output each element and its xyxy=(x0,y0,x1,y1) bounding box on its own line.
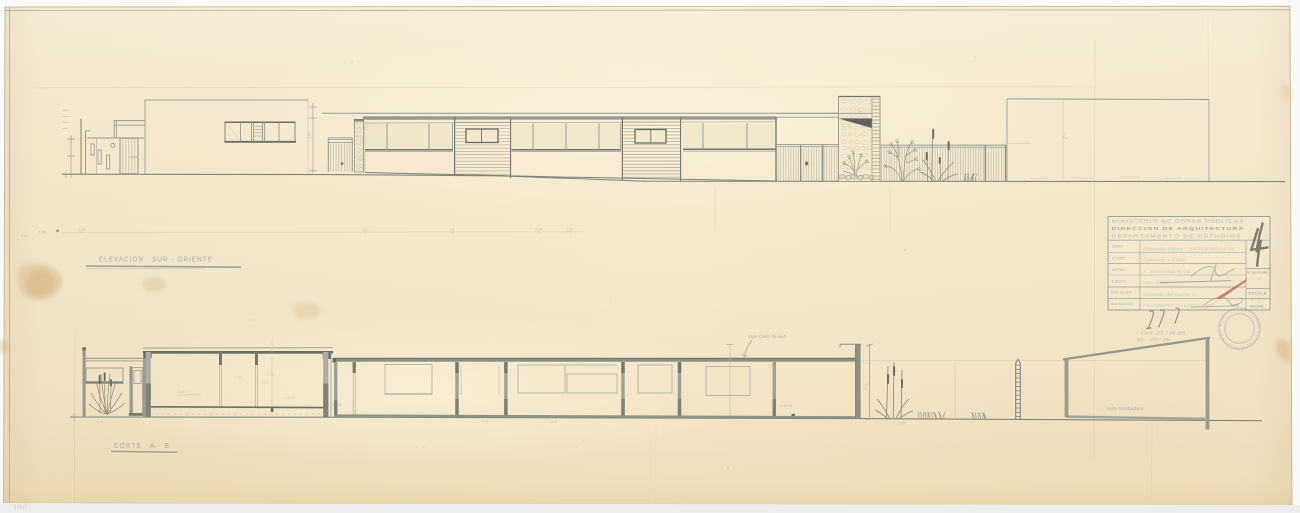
svg-text:1.15: 1.15 xyxy=(566,228,573,232)
svg-text:JEFE SECCION: JEFE SECCION xyxy=(1110,302,1132,306)
svg-text:Escuela Mixta - ANTOFAGASTA: Escuela Mixta - ANTOFAGASTA xyxy=(1143,246,1235,251)
svg-text:2.6: 2.6 xyxy=(550,420,557,424)
svg-text:2.50: 2.50 xyxy=(233,375,243,380)
svg-text:JEFE TALLER: JEFE TALLER xyxy=(1111,291,1132,295)
svg-text:6.10: 6.10 xyxy=(535,228,542,232)
svg-text:DIBUJO: DIBUJO xyxy=(1112,280,1126,284)
svg-text:DIRECCION DE ARQUITECTURA: DIRECCION DE ARQUITECTURA xyxy=(1112,226,1245,231)
svg-text:DEPARTAMENTO DE ESTUDIOS: DEPARTAMENTO DE ESTUDIOS xyxy=(1112,234,1242,239)
svg-text:A. Echeverria B. Ob.: A. Echeverria B. Ob. xyxy=(1142,269,1192,274)
svg-text:1.70: 1.70 xyxy=(96,420,103,424)
svg-text:ELEVACION: ELEVACION xyxy=(99,257,144,264)
svg-text:2.40 m: 2.40 m xyxy=(779,403,793,408)
svg-text:2.50: 2.50 xyxy=(37,231,46,235)
svg-text:11 - 25 / 45: 11 - 25 / 45 xyxy=(1137,337,1171,342)
svg-text:A - B: A - B xyxy=(150,443,170,450)
svg-text:Osvaldo del Canto G.: Osvaldo del Canto G. xyxy=(1143,292,1198,297)
svg-text:2.60: 2.60 xyxy=(267,373,276,377)
svg-text:1.10: 1.10 xyxy=(78,228,85,232)
svg-text:2.50: 2.50 xyxy=(260,381,269,385)
svg-text:1 : 50: 1 : 50 xyxy=(1252,297,1263,302)
svg-text:2: 2 xyxy=(1063,132,1066,136)
svg-text:Fachada y Corte: Fachada y Corte xyxy=(1143,257,1187,262)
svg-text:FECHA: FECHA xyxy=(1250,305,1265,309)
svg-text:4.05: 4.05 xyxy=(362,228,369,232)
svg-text:Viga Cielo de Asb.: Viga Cielo de Asb. xyxy=(748,334,787,339)
svg-text:7.00: 7.00 xyxy=(899,422,906,426)
svg-text:N.º DEL PLANO: N.º DEL PLANO xyxy=(1247,270,1268,274)
svg-text:ESCALA: ESCALA xyxy=(1249,292,1267,296)
svg-text:SUR - ORIENTE: SUR - ORIENTE xyxy=(152,257,213,264)
svg-text:2.40: 2.40 xyxy=(177,389,187,394)
svg-text:APRBO: APRBO xyxy=(1112,268,1126,272)
svg-text:PLANO: PLANO xyxy=(1112,256,1125,260)
svg-text:Cu.: Cu. xyxy=(21,233,28,238)
svg-text:Ord. 25 / W 26: Ord. 25 / W 26 xyxy=(1141,331,1186,336)
svg-text:1.00 m: 1.00 m xyxy=(283,396,295,400)
svg-text:OBRA: OBRA xyxy=(1112,244,1124,248)
svg-text:1 - 64: 1 - 64 xyxy=(1251,276,1262,281)
svg-text:CORTE: CORTE xyxy=(114,443,142,450)
svg-text:2.16: 2.16 xyxy=(480,420,489,424)
svg-text:17317: 17317 xyxy=(14,505,28,510)
svg-text:Sala Incubadora: Sala Incubadora xyxy=(1107,406,1144,411)
svg-text:MINISTERIO DE OBRAS PUBLICA: MINISTERIO DE OBRAS PUBLICAS xyxy=(1112,218,1245,223)
svg-text:2.50: 2.50 xyxy=(308,132,312,140)
